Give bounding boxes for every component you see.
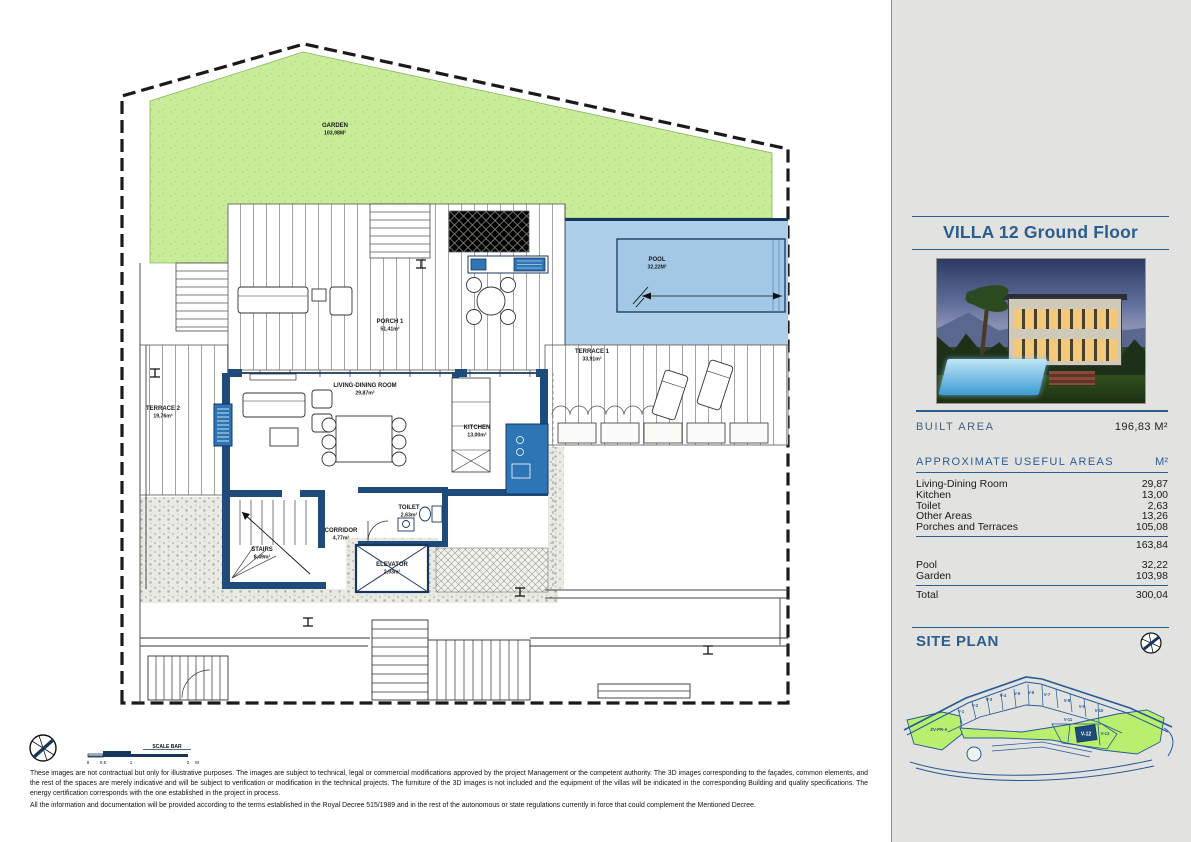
disclaimer-paragraph-1: These images are not contractual but onl… bbox=[30, 769, 868, 798]
outdoor-lounge bbox=[238, 287, 352, 315]
info-panel: VILLA 12 Ground Floor BUILT AREA 196,83 … bbox=[891, 0, 1191, 842]
lot-label: V-7 bbox=[1044, 692, 1051, 697]
kitchen-unit bbox=[506, 424, 548, 494]
terrace1-label: TERRACE 1 bbox=[575, 349, 610, 355]
stairs-room bbox=[232, 500, 310, 578]
living-area-label: 29,87m² bbox=[355, 391, 375, 397]
terrace2-label: TERRACE 2 bbox=[146, 406, 181, 412]
garden-label: GARDEN bbox=[322, 123, 348, 129]
lot-label: V-3 bbox=[986, 697, 993, 702]
stairs-area-label: 8,49m² bbox=[254, 555, 271, 561]
photo-steps bbox=[1049, 371, 1095, 385]
site-plan-map: V-12 V-1 V-2 V-3 V-4 V-5 V-6 V-7 V-8 V-9… bbox=[902, 672, 1182, 784]
built-area-row: BUILT AREA 196,83 M² bbox=[916, 410, 1168, 433]
row-value: 105,08 bbox=[1136, 522, 1168, 533]
title-block: VILLA 12 Ground Floor bbox=[912, 216, 1169, 250]
useful-areas-unit: M² bbox=[1155, 456, 1168, 468]
table-row: Porches and Terraces 105,08 bbox=[916, 522, 1168, 533]
table-row: Pool 32,22 bbox=[916, 560, 1168, 571]
row-value: 103,98 bbox=[1136, 571, 1168, 582]
row-label: Pool bbox=[916, 560, 937, 571]
outdoor-areas-table: Pool 32,22 Garden 103,98 bbox=[916, 560, 1168, 582]
garden-stairs bbox=[176, 263, 230, 331]
row-label: Kitchen bbox=[916, 490, 951, 501]
kitchen-area-label: 13,00m² bbox=[467, 433, 487, 439]
pool-area bbox=[565, 218, 788, 345]
row-value: 13,00 bbox=[1142, 490, 1168, 501]
terrace1-area-label: 33,91m² bbox=[582, 357, 602, 363]
floor-plan: GARDEN 103,98M² POOL 32,22M² PORCH 1 51,… bbox=[0, 0, 891, 766]
photo-windows-upper bbox=[1013, 309, 1117, 329]
scale-tick-2: 2 bbox=[187, 760, 190, 765]
table-row: Living-Dining Room 29,87 bbox=[916, 479, 1168, 490]
zone-label: ZV-PR-A bbox=[930, 727, 947, 732]
elevator-shaft bbox=[356, 545, 428, 592]
row-label: Porches and Terraces bbox=[916, 522, 1018, 533]
planter-boxes bbox=[558, 423, 768, 443]
elevator-area-label: 2,93m² bbox=[384, 570, 401, 576]
corridor-area-label: 4,77m² bbox=[333, 536, 350, 542]
scale-bar: SCALE BAR 0 0.5 1 2 M bbox=[87, 744, 199, 765]
roundabout bbox=[967, 747, 981, 761]
scale-bar-label: SCALE BAR bbox=[152, 744, 182, 750]
outdoor-kitchen bbox=[468, 256, 548, 273]
green-zone-right bbox=[960, 710, 1164, 754]
stairs-label: STAIRS bbox=[251, 547, 273, 553]
scale-tick-0: 0 bbox=[87, 760, 90, 765]
photo-pool bbox=[939, 359, 1048, 395]
disclaimer: These images are not contractual but onl… bbox=[30, 769, 868, 814]
total-label: Total bbox=[916, 589, 938, 601]
photo-windows-lower bbox=[1013, 339, 1117, 361]
disclaimer-paragraph-2: All the information and documentation wi… bbox=[30, 801, 868, 811]
toilet-room bbox=[368, 506, 442, 541]
scale-unit: M bbox=[195, 760, 199, 765]
lot-label: V-8 bbox=[1064, 698, 1071, 703]
table-row: Garden 103,98 bbox=[916, 571, 1168, 582]
pool-area-label: 32,22M² bbox=[647, 265, 666, 271]
villa-photo bbox=[936, 258, 1146, 404]
page: GARDEN 103,98M² POOL 32,22M² PORCH 1 51,… bbox=[0, 0, 1191, 842]
corridor-label: CORRIDOR bbox=[325, 528, 358, 534]
porch-label: PORCH 1 bbox=[377, 319, 404, 325]
subtotal-row: 163,84 bbox=[916, 536, 1168, 551]
porch-area-label: 51,41m² bbox=[380, 327, 400, 333]
lot-label: V-2 bbox=[972, 703, 979, 708]
lot-label: V-1 bbox=[958, 709, 965, 714]
useful-areas-table: Living-Dining Room 29,87 Kitchen 13,00 T… bbox=[916, 479, 1168, 551]
paved-patch bbox=[449, 211, 529, 252]
built-area-label: BUILT AREA bbox=[916, 421, 995, 433]
toilet-label: TOILET bbox=[398, 505, 420, 511]
total-value: 300,04 bbox=[1136, 589, 1168, 601]
lot-label: V-4 bbox=[1000, 693, 1007, 698]
row-label: Garden bbox=[916, 571, 951, 582]
compass-icon bbox=[30, 735, 56, 761]
subtotal-value: 163,84 bbox=[1136, 540, 1168, 551]
siteplan-heading: SITE PLAN bbox=[916, 633, 999, 650]
siteplan-compass-icon bbox=[1139, 631, 1163, 655]
lot-label: V-13 bbox=[1101, 731, 1110, 736]
scale-tick-1: 1 bbox=[130, 760, 133, 765]
lot-label: V-11 bbox=[1064, 717, 1073, 722]
elevator-label: ELEVATOR bbox=[376, 562, 408, 568]
toilet-area-label: 2,63m² bbox=[401, 513, 418, 519]
useful-areas-heading: APPROXIMATE USEFUL AREAS bbox=[916, 456, 1114, 468]
table-row: Kitchen 13,00 bbox=[916, 490, 1168, 501]
siteplan-divider bbox=[912, 627, 1169, 628]
areas-section: BUILT AREA 196,83 M² APPROXIMATE USEFUL … bbox=[916, 410, 1168, 601]
lot-label: V-10 bbox=[1095, 708, 1104, 713]
terrace2-area-label: 19,76m² bbox=[153, 414, 173, 420]
scale-tick-05: 0.5 bbox=[100, 760, 107, 765]
living-label: LIVING-DINING ROOM bbox=[333, 383, 396, 389]
lot-label-v12: V-12 bbox=[1081, 732, 1092, 738]
total-row: Total 300,04 bbox=[916, 585, 1168, 601]
kitchen-label: KITCHEN bbox=[464, 425, 491, 431]
page-title: VILLA 12 Ground Floor bbox=[912, 222, 1169, 243]
lot-label: V-6 bbox=[1028, 690, 1035, 695]
built-area-value: 196,83 M² bbox=[1115, 421, 1168, 433]
lot-label: V-9 bbox=[1079, 704, 1086, 709]
useful-areas-heading-row: APPROXIMATE USEFUL AREAS M² bbox=[916, 456, 1168, 473]
pool-label: POOL bbox=[648, 257, 665, 263]
lot-label: V-5 bbox=[1014, 691, 1021, 696]
garden-area-label: 103,98M² bbox=[324, 131, 346, 137]
deck-porch bbox=[228, 204, 565, 370]
row-value: 32,22 bbox=[1142, 560, 1168, 571]
